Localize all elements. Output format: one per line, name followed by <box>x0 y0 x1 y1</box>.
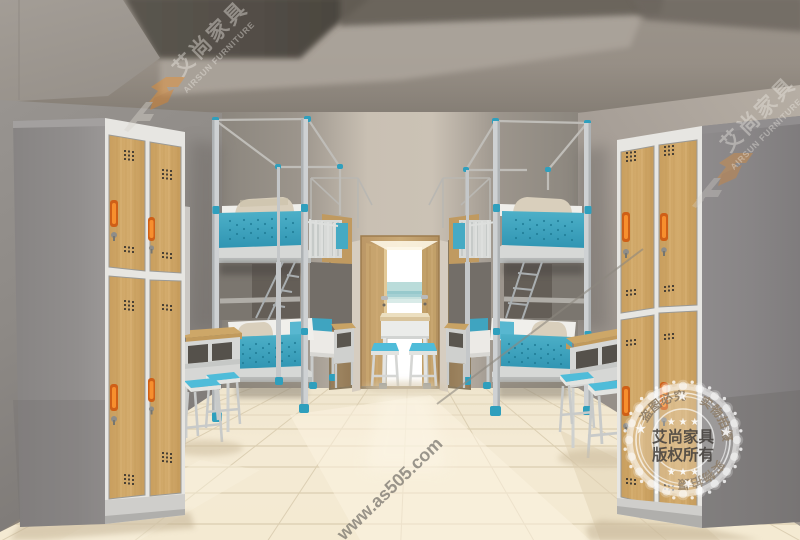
svg-text:★ ★ ★: ★ ★ ★ <box>667 417 699 428</box>
svg-text:★ ★ ★: ★ ★ ★ <box>667 467 699 478</box>
svg-text:版权所有: 版权所有 <box>651 445 714 464</box>
svg-text:艾尚家具: 艾尚家具 <box>652 427 715 446</box>
svg-text:★: ★ <box>682 476 695 491</box>
svg-text:★: ★ <box>677 389 688 403</box>
